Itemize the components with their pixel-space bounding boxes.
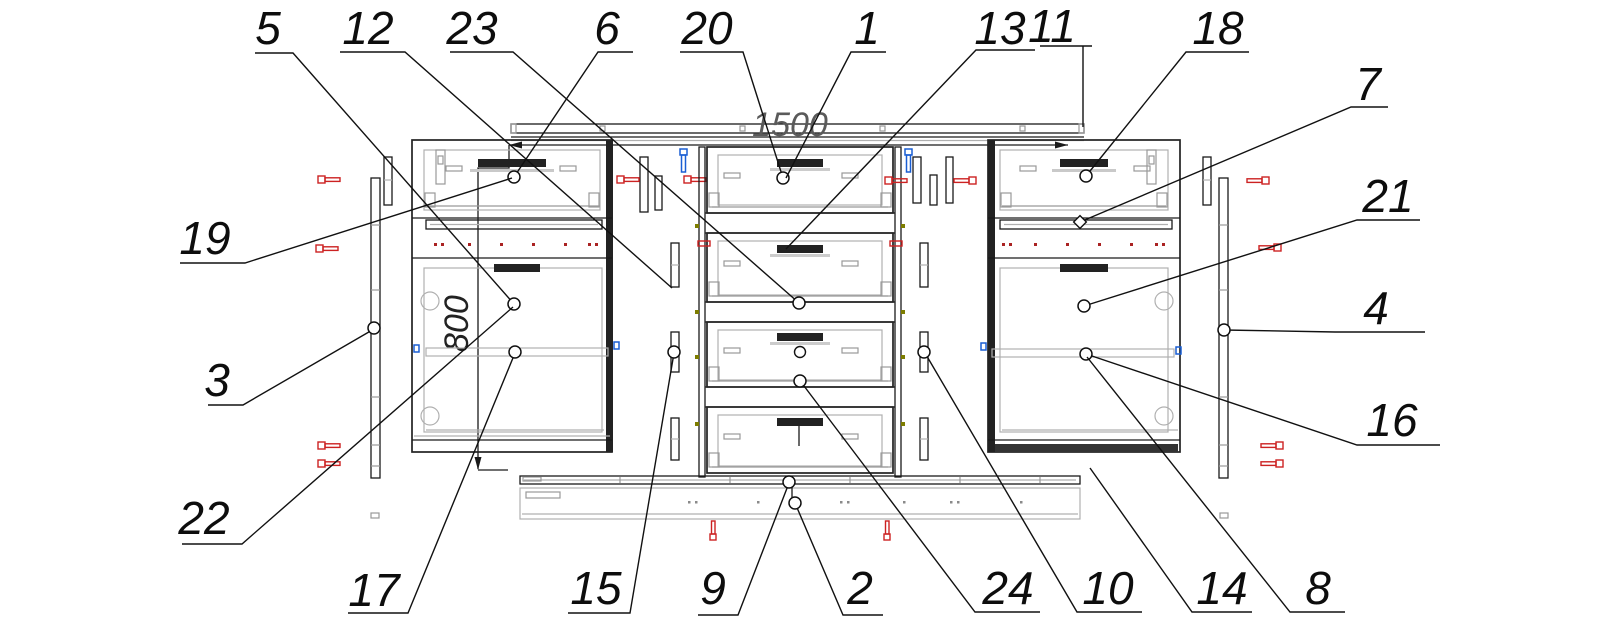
leader-line	[1224, 330, 1425, 332]
callout-number-7: 7	[1355, 58, 1382, 110]
leader-target-circle	[1078, 300, 1090, 312]
callout-number-1: 1	[854, 2, 880, 54]
callout-number-5: 5	[255, 2, 281, 54]
slat-foot	[1220, 513, 1228, 518]
screw-icon	[617, 176, 639, 183]
callout-19: 19	[179, 178, 512, 264]
leader-target-circle	[508, 298, 520, 310]
leader-target-circle	[794, 375, 806, 387]
leader-target-circle	[789, 497, 801, 509]
cam-bolt-icon	[905, 149, 912, 172]
screw-icon	[885, 177, 907, 184]
cabinet-assembly-diagram: 1500 800	[0, 0, 1600, 624]
callout-number-23: 23	[445, 2, 498, 54]
leader-target-circle	[1080, 170, 1092, 182]
callout-number-9: 9	[700, 562, 726, 614]
callout-16: 16	[1080, 348, 1440, 446]
plinth-dot-marks	[688, 501, 1023, 504]
callout-number-19: 19	[179, 212, 230, 264]
leader-target-circle	[368, 322, 380, 334]
drawer-handle	[777, 418, 823, 426]
callout-2: 2	[789, 497, 883, 615]
callout-number-6: 6	[594, 2, 620, 54]
leader-target-circle	[668, 346, 680, 358]
callout-number-16: 16	[1366, 394, 1418, 446]
screw-icon	[316, 245, 338, 252]
leader-line	[514, 52, 633, 177]
left-cabinet-side-panel	[606, 140, 613, 452]
callout-number-10: 10	[1082, 562, 1134, 614]
callout-number-3: 3	[204, 354, 230, 406]
screw-icon	[884, 521, 890, 540]
screw-icon	[1261, 442, 1283, 449]
dim-arrow-bottom	[475, 457, 482, 470]
callout-number-20: 20	[680, 2, 733, 54]
callout-number-18: 18	[1192, 2, 1244, 54]
callout-number-17: 17	[348, 564, 401, 616]
right-cabinet-rail	[1000, 220, 1172, 246]
dimension-height: 800	[438, 145, 509, 470]
callout-number-24: 24	[981, 562, 1033, 614]
cam-bolt-icon	[680, 149, 687, 172]
middle-drawer-4	[707, 407, 893, 473]
middle-drawer-1	[707, 147, 893, 213]
callout-11: 11	[1028, 0, 1092, 127]
callout-number-4: 4	[1363, 282, 1389, 334]
leader-target-circle	[918, 346, 930, 358]
leader-target-circle	[509, 346, 521, 358]
callout-18: 18	[1080, 2, 1249, 182]
dim-arrow-right	[1055, 142, 1068, 149]
right-cabinet-side-panel	[988, 140, 995, 452]
screw-icon	[318, 442, 340, 449]
screw-point	[795, 347, 806, 358]
hinge-cup	[1155, 292, 1173, 310]
callout-20: 20	[680, 2, 789, 184]
leader-target-circle	[508, 171, 520, 183]
leader-target-circle	[793, 297, 805, 309]
leader-line	[1080, 107, 1388, 222]
leader-target-circle	[783, 476, 795, 488]
callout-7: 7	[1074, 58, 1388, 228]
dimension-width: 1500	[509, 106, 1068, 149]
middle-drawer-stack	[695, 147, 905, 477]
callout-number-2: 2	[846, 562, 873, 614]
rail-dowel-marks	[434, 243, 598, 246]
hinge-cup	[1155, 407, 1173, 425]
callout-layer: 512236201131118721416814102429151722319	[177, 0, 1440, 616]
drawer-handle	[777, 159, 823, 167]
callout-number-15: 15	[570, 562, 622, 614]
screw-icon	[710, 521, 716, 540]
callout-number-11: 11	[1028, 0, 1076, 52]
right-cabinet	[981, 140, 1181, 452]
callout-17: 17	[348, 346, 521, 616]
screw-icon	[954, 177, 976, 184]
callout-9: 9	[698, 476, 795, 615]
drawer-handle	[777, 245, 823, 253]
screw-icon	[1247, 177, 1269, 184]
callout-number-12: 12	[342, 2, 393, 54]
gap-left-drawer-slides	[617, 149, 706, 460]
callout-3: 3	[204, 322, 380, 406]
right-cabinet-door	[981, 264, 1181, 432]
leader-line	[1040, 46, 1092, 127]
plinth	[520, 476, 1080, 540]
leader-target-circle	[1080, 348, 1092, 360]
leader-line	[208, 329, 374, 405]
leader-target-circle	[777, 172, 789, 184]
right-side-slats	[1203, 157, 1283, 518]
leader-target-circle	[1218, 324, 1230, 336]
door-handle	[1060, 264, 1108, 272]
door-handle	[494, 264, 540, 272]
rail-dowel-marks	[1002, 243, 1165, 246]
callout-number-14: 14	[1196, 562, 1247, 614]
callout-number-21: 21	[1361, 170, 1413, 222]
callout-number-22: 22	[177, 492, 229, 544]
screw-icon	[1261, 460, 1283, 467]
middle-drawer-2	[707, 233, 893, 302]
callout-number-8: 8	[1305, 562, 1331, 614]
slat-foot	[371, 513, 379, 518]
drawer-handle	[478, 159, 546, 167]
callout-1: 1	[786, 2, 886, 178]
drawer-handle	[777, 333, 823, 341]
screw-icon	[684, 176, 706, 183]
callout-number-13: 13	[974, 2, 1026, 54]
assembly-drawing-page: 1500 800	[0, 0, 1600, 624]
hinge-plate	[1147, 150, 1156, 184]
callout-6: 6	[508, 2, 633, 183]
callout-24: 24	[794, 375, 1040, 614]
left-side-slats	[316, 157, 392, 518]
drawer-handle	[1060, 159, 1108, 167]
dim-width-label: 1500	[752, 106, 828, 144]
callout-4: 4	[1218, 282, 1425, 336]
gap-right-drawer-slides	[885, 149, 976, 460]
screw-icon	[318, 176, 340, 183]
hinge-plate	[436, 150, 445, 184]
